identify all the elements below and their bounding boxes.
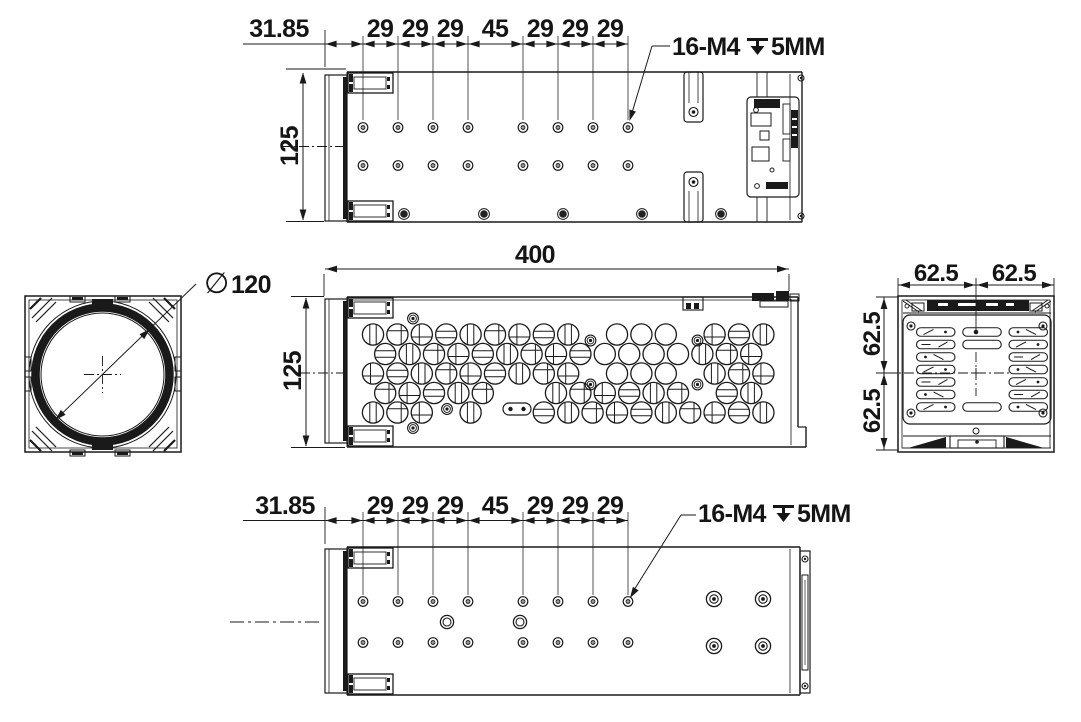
depth-symbol-icon: [747, 38, 768, 55]
top-pitch-dim-label: 29: [437, 15, 464, 43]
bottom-pitch-dim-label: 29: [527, 492, 554, 520]
bottom-pitch-dim-label: 29: [562, 492, 589, 520]
bottom-thread-callout-text: 16-M4: [698, 500, 767, 528]
bottom-offset-dim-label: 31.85: [255, 492, 315, 520]
bottom-view-dimensions: [243, 507, 696, 598]
side-length-dim-label: 400: [515, 241, 555, 269]
top-pitch-dim-label: 29: [402, 15, 429, 43]
top-pitch-dim-label: 29: [562, 15, 589, 43]
bottom-pitch-dim-label: 29: [597, 492, 624, 520]
bottom-pitch-dim-label: 29: [402, 492, 429, 520]
top-pitch-dim-label: 29: [597, 15, 624, 43]
diameter-symbol: ∅: [204, 268, 229, 300]
top-pitch-dim-label: 29: [527, 15, 554, 43]
rear-side-dim-label: 62.5: [859, 389, 886, 434]
front-view: [25, 284, 196, 456]
top-thread-depth-text: 5MM: [771, 33, 825, 61]
bottom-pitch-dim-label: 45: [482, 492, 509, 520]
top-offset-dim-label: 31.85: [249, 15, 309, 43]
top-view-dimensions: [243, 30, 670, 222]
side-height-dim-label: 125: [279, 350, 307, 391]
engineering-drawing-page: 31.85 29 29 29 45 29 29 29 125 16-M4 5MM…: [0, 0, 1081, 722]
rear-side-dim-label: 62.5: [859, 312, 886, 357]
top-thread-callout-text: 16-M4: [672, 33, 741, 61]
rear-top-dim-label: 62.5: [914, 260, 959, 287]
side-view: [300, 291, 806, 447]
drawing-canvas: 31.85 29 29 29 45 29 29 29 125 16-M4 5MM…: [0, 0, 1081, 722]
bottom-thread-depth-text: 5MM: [797, 500, 851, 528]
top-height-dim-label: 125: [276, 125, 304, 166]
diameter-value-label: 120: [231, 271, 271, 299]
bottom-pitch-dim-label: 29: [437, 492, 464, 520]
top-view: [281, 72, 804, 222]
rear-top-dim-label: 62.5: [992, 260, 1037, 287]
top-pitch-dim-label: 29: [367, 15, 394, 43]
depth-symbol-icon: [773, 505, 794, 522]
bottom-view: [230, 547, 810, 695]
bottom-pitch-dim-label: 29: [367, 492, 394, 520]
top-pitch-dim-label: 45: [482, 15, 509, 43]
